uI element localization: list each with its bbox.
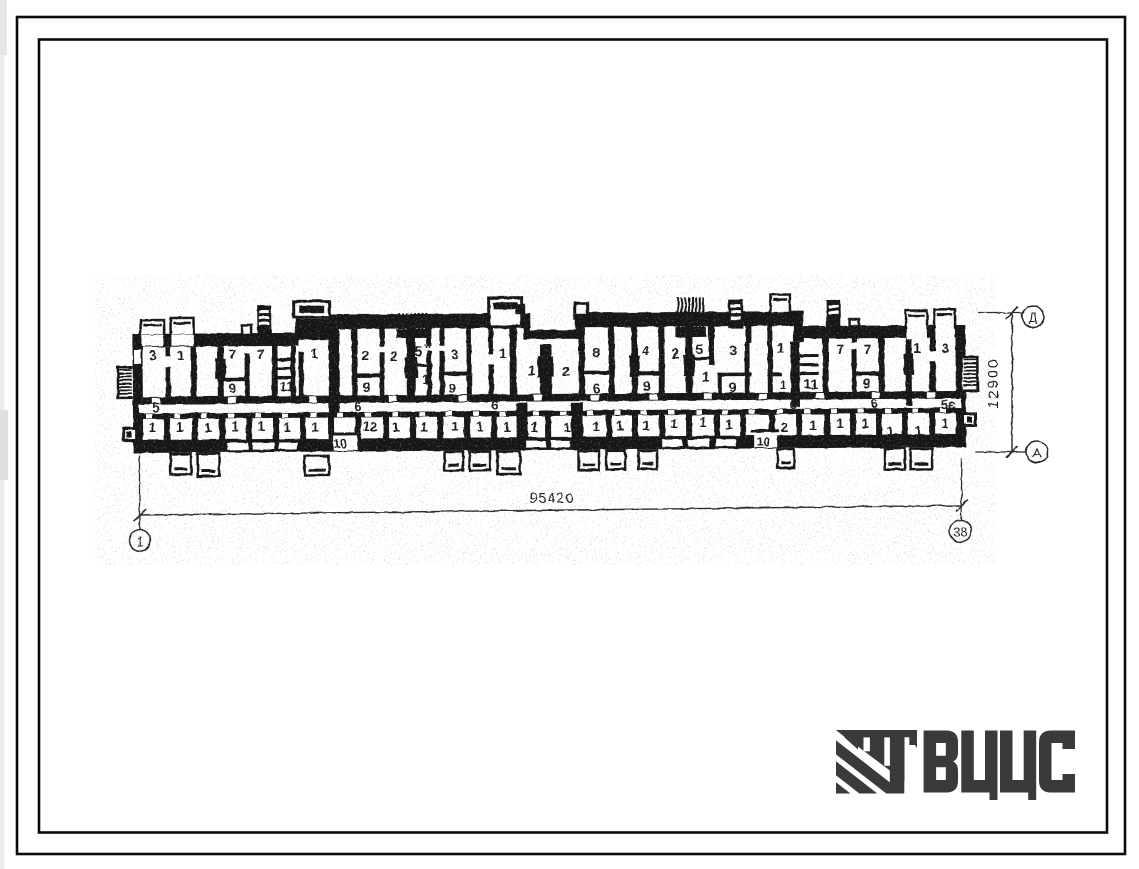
svg-text:Д: Д	[1029, 310, 1038, 325]
svg-text:А: А	[1033, 446, 1042, 461]
